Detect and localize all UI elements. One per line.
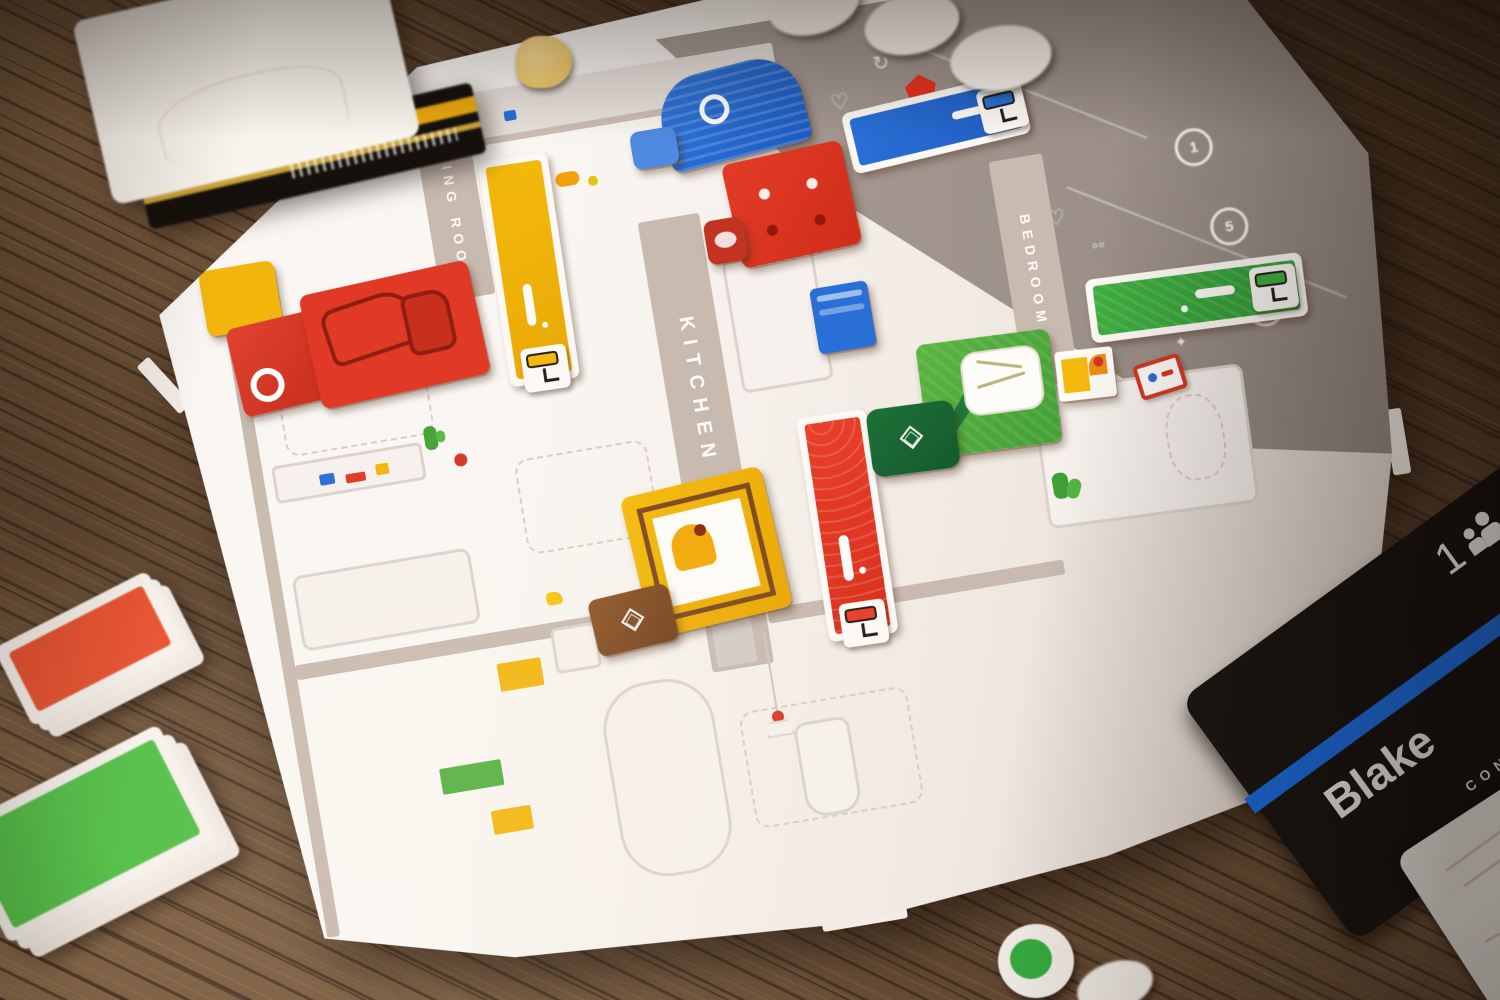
sofa-outline [291, 547, 481, 652]
gem-style-icon [900, 425, 924, 449]
bathtub-outline [596, 672, 739, 884]
roller-bar [981, 90, 1015, 111]
painting-tile-small [1054, 346, 1117, 402]
lamp-shade-line [976, 360, 1022, 368]
roller-bar [844, 605, 878, 624]
paint-roller-token [1248, 263, 1299, 313]
lamp-base-tab-green [865, 399, 961, 478]
paint-roller-token [520, 343, 572, 393]
paired-circles-icon: ◦◦ [1090, 234, 1107, 258]
roller-grip [863, 632, 878, 637]
onion-accent [453, 452, 468, 467]
lamp-shade-line [977, 371, 1026, 389]
sparkle-icon: ✦ [1173, 332, 1188, 352]
accent-tile [375, 463, 390, 476]
accent-tile [587, 175, 599, 187]
green-dot [1010, 939, 1052, 979]
pencil-line [1485, 911, 1500, 943]
armchair-cushion-art [399, 286, 459, 357]
score-badge: 5 [1207, 204, 1251, 248]
gem-style-icon [621, 608, 644, 631]
roller-grip [544, 377, 559, 382]
hanging-art-shape [667, 520, 718, 573]
accent-tile [491, 805, 534, 835]
score-badge-value: 1 [1188, 138, 1199, 156]
card-line-art [151, 54, 352, 165]
lamp-shade [958, 344, 1046, 418]
score-badge-value: 5 [1224, 217, 1235, 235]
circle-style-icon [696, 91, 733, 128]
curio-tab-blue [629, 126, 681, 171]
curio-tab-red [702, 216, 749, 266]
duck-accent [545, 591, 563, 606]
frame-dot-blue [1147, 372, 1158, 383]
lamp-tile-green [857, 328, 1065, 484]
round-token-green-dot [998, 924, 1074, 998]
hanging-tab-brown [587, 582, 680, 658]
photo-board-game-scene: ✚ ◦◦ ♡ ↻ ♪ ✦ ♪ ♡ ◦◦ ↻ ✦ 1 5 10 [0, 0, 1500, 1000]
rug-outline [738, 685, 925, 829]
circle-style-icon [247, 364, 288, 405]
conditions-label: CONDITIONS [1462, 689, 1500, 795]
paint-roller-token [838, 598, 890, 648]
score-badge: 1 [1172, 125, 1216, 169]
dresser-tile-blue [809, 280, 877, 355]
player-count-badge: 1 [1428, 504, 1500, 583]
wall-middle-right [767, 559, 1065, 623]
pencil-line [1463, 833, 1500, 887]
painting-shape [1061, 357, 1091, 394]
player-name: Blake [1314, 713, 1445, 829]
roller-bar [525, 350, 559, 369]
dresser-drawer-line [819, 303, 865, 317]
dresser-drawer-line [816, 289, 862, 303]
accent-tile [439, 759, 504, 795]
cactus-plant-arm [435, 430, 446, 443]
frame-tick-red [1161, 369, 1174, 377]
armchair-tile-red [298, 259, 491, 409]
roller-bar [1254, 270, 1288, 288]
roller-grip [1272, 297, 1287, 302]
oval-style-icon [713, 230, 737, 249]
accent-tile [497, 657, 545, 692]
